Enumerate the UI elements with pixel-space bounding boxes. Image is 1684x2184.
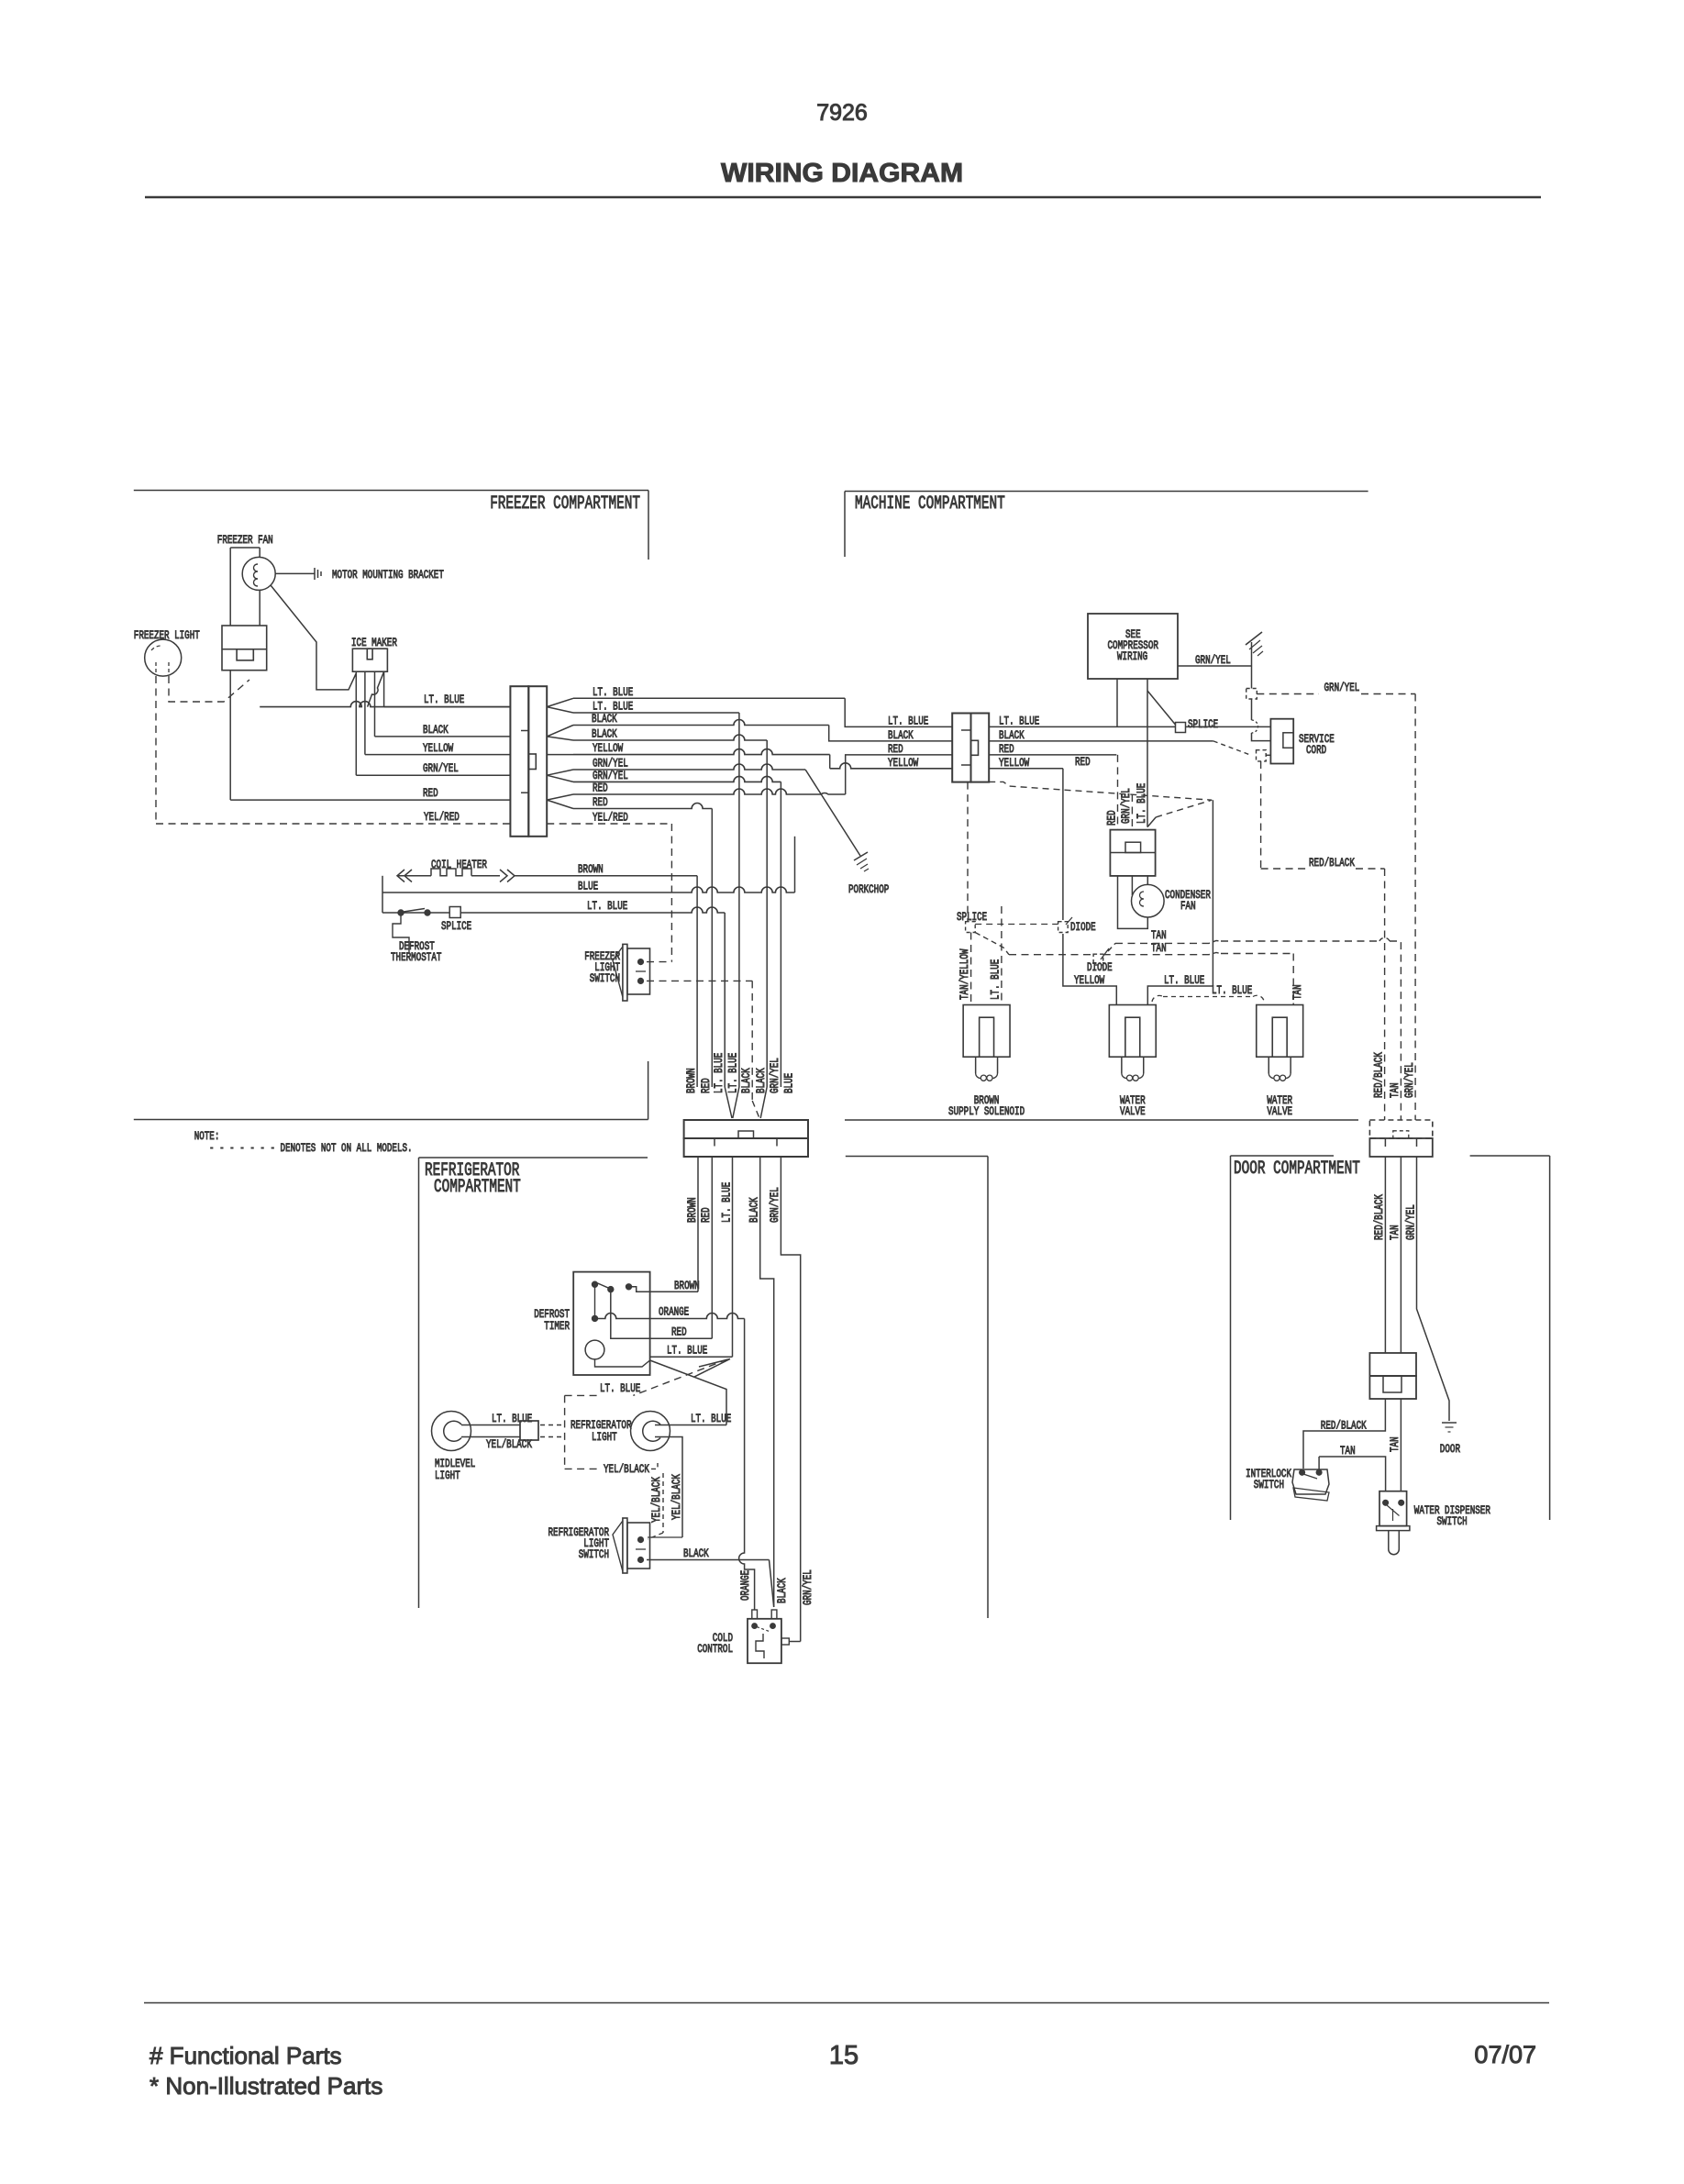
svg-text:YELLOW: YELLOW [423, 741, 453, 755]
svg-text:LT. BLUE: LT. BLUE [712, 1053, 726, 1093]
svg-text:LIGHT: LIGHT [592, 1430, 617, 1444]
svg-text:RED: RED [699, 1078, 713, 1093]
svg-text:RED: RED [593, 795, 608, 809]
svg-text:YEL/RED: YEL/RED [424, 810, 460, 824]
svg-text:YELLOW: YELLOW [593, 741, 623, 755]
svg-text:RED: RED [423, 786, 438, 800]
svg-text:FREEZER FAN: FREEZER FAN [217, 533, 273, 547]
svg-text:RED: RED [1075, 755, 1091, 769]
svg-text:SWITCH: SWITCH [579, 1547, 609, 1561]
svg-text:FAN: FAN [1180, 899, 1196, 913]
svg-text:RED: RED [699, 1207, 713, 1223]
svg-text:GRN/YEL: GRN/YEL [1402, 1062, 1416, 1098]
svg-text:BLACK: BLACK [739, 1068, 753, 1093]
svg-text:GRN/YEL: GRN/YEL [768, 1058, 781, 1093]
svg-text:PORKCHOP: PORKCHOP [848, 882, 889, 896]
svg-text:LT. BLUE: LT. BLUE [726, 1053, 740, 1093]
svg-text:LT. BLUE: LT. BLUE [1212, 983, 1252, 997]
svg-text:LT. BLUE: LT. BLUE [667, 1344, 707, 1358]
svg-text:RED/BLACK: RED/BLACK [1309, 856, 1355, 870]
svg-text:RED: RED [1104, 810, 1118, 826]
svg-text:YELLOW: YELLOW [1074, 973, 1104, 987]
svg-text:WIRING: WIRING [1117, 649, 1147, 663]
svg-text:BROWN: BROWN [685, 1197, 699, 1223]
svg-text:BLACK: BLACK [999, 728, 1025, 742]
svg-text:RED/BLACK: RED/BLACK [1372, 1194, 1386, 1240]
svg-text:TAN: TAN [1388, 1225, 1401, 1240]
svg-text:DOOR: DOOR [1440, 1442, 1460, 1456]
svg-text:GRN/YEL: GRN/YEL [1324, 681, 1360, 694]
svg-text:LT. BLUE: LT. BLUE [888, 714, 928, 727]
svg-text:- - - - - - - DENOTES NOT ON A: - - - - - - - DENOTES NOT ON ALL MODELS. [209, 1141, 413, 1155]
svg-text:LT. BLUE: LT. BLUE [691, 1412, 731, 1425]
svg-text:DOOR COMPARTMENT: DOOR COMPARTMENT [1234, 1159, 1360, 1180]
svg-text:TAN: TAN [1388, 1082, 1401, 1098]
svg-text:TAN: TAN [1291, 984, 1304, 1000]
svg-text:BROWN: BROWN [578, 862, 604, 876]
svg-text:GRN/YEL: GRN/YEL [1403, 1204, 1417, 1240]
svg-text:YEL/BLACK: YEL/BLACK [670, 1474, 683, 1520]
svg-text:YELLOW: YELLOW [999, 756, 1029, 770]
svg-text:TAN: TAN [1151, 928, 1167, 942]
svg-text:BLACK: BLACK [754, 1068, 768, 1093]
svg-text:SUPPLY SOLENOID: SUPPLY SOLENOID [948, 1104, 1025, 1118]
svg-text:ORANGE: ORANGE [659, 1305, 689, 1319]
svg-text:BLACK: BLACK [592, 712, 617, 726]
svg-text:LT. BLUE: LT. BLUE [999, 714, 1039, 727]
svg-text:THERMOSTAT: THERMOSTAT [391, 950, 442, 964]
svg-text:SWITCH: SWITCH [590, 971, 620, 985]
svg-text:TAN/YELLOW: TAN/YELLOW [958, 948, 971, 1000]
svg-text:SPLICE: SPLICE [441, 919, 471, 933]
svg-text:RED/BLACK: RED/BLACK [1321, 1419, 1367, 1433]
svg-text:LIGHT: LIGHT [435, 1469, 460, 1482]
svg-text:LT. BLUE: LT. BLUE [600, 1381, 640, 1395]
svg-text:BLUE: BLUE [578, 880, 598, 893]
svg-text:TAN: TAN [1388, 1436, 1401, 1452]
svg-text:DIODE: DIODE [1070, 920, 1096, 934]
svg-text:YEL/RED: YEL/RED [593, 811, 628, 825]
svg-text:CONTROL: CONTROL [697, 1642, 733, 1656]
svg-text:07/07: 07/07 [1474, 2041, 1536, 2068]
svg-text:YELLOW: YELLOW [888, 756, 918, 770]
svg-text:SPLICE: SPLICE [957, 910, 987, 924]
svg-text:VALVE: VALVE [1120, 1104, 1146, 1118]
svg-text:BLACK: BLACK [423, 723, 449, 737]
svg-text:BROWN: BROWN [684, 1068, 698, 1093]
svg-text:LT. BLUE: LT. BLUE [989, 959, 1003, 1000]
svg-text:RED: RED [888, 742, 903, 756]
svg-text:DIODE: DIODE [1087, 960, 1113, 974]
svg-text:* Non-Illustrated Parts: * Non-Illustrated Parts [150, 2072, 382, 2100]
svg-text:WIRING DIAGRAM: WIRING DIAGRAM [721, 159, 963, 188]
svg-text:BLUE: BLUE [781, 1073, 795, 1093]
svg-text:SWITCH: SWITCH [1437, 1514, 1468, 1528]
svg-text:BLACK: BLACK [775, 1578, 789, 1603]
svg-text:GRN/YEL: GRN/YEL [768, 1187, 781, 1223]
svg-text:TAN: TAN [1151, 941, 1167, 955]
svg-text:CORD: CORD [1306, 743, 1326, 757]
svg-text:LT. BLUE: LT. BLUE [492, 1412, 532, 1425]
svg-text:MOTOR MOUNTING BRACKET: MOTOR MOUNTING BRACKET [332, 568, 444, 582]
svg-text:15: 15 [829, 2041, 859, 2070]
svg-text:RED: RED [593, 782, 608, 795]
svg-text:BROWN: BROWN [674, 1279, 700, 1292]
svg-text:LT. BLUE: LT. BLUE [719, 1182, 733, 1223]
svg-text:GRN/YEL: GRN/YEL [1195, 653, 1231, 667]
svg-text:LT. BLUE: LT. BLUE [1164, 973, 1204, 987]
svg-text:RED: RED [671, 1325, 687, 1339]
svg-text:# Functional Parts: # Functional Parts [150, 2042, 342, 2069]
svg-text:LT. BLUE: LT. BLUE [587, 899, 627, 913]
svg-text:7926: 7926 [816, 100, 868, 126]
svg-text:LT. BLUE: LT. BLUE [1135, 783, 1148, 824]
svg-text:TIMER: TIMER [544, 1319, 570, 1333]
svg-text:BLACK: BLACK [888, 728, 914, 742]
svg-text:LT. BLUE: LT. BLUE [593, 685, 633, 699]
svg-text:YEL/BLACK: YEL/BLACK [604, 1462, 649, 1476]
svg-text:GRN/YEL: GRN/YEL [801, 1569, 814, 1605]
svg-text:GRN/YEL: GRN/YEL [423, 761, 459, 775]
svg-text:MACHINE COMPARTMENT: MACHINE COMPARTMENT [855, 493, 1005, 515]
svg-text:VALVE: VALVE [1267, 1104, 1292, 1118]
svg-text:SWITCH: SWITCH [1254, 1478, 1284, 1491]
svg-text:BLACK: BLACK [592, 727, 617, 741]
svg-text:LT. BLUE: LT. BLUE [424, 693, 464, 706]
svg-text:FREEZER COMPARTMENT: FREEZER COMPARTMENT [490, 493, 640, 515]
svg-text:RED/BLACK: RED/BLACK [1371, 1052, 1385, 1098]
svg-text:YEL/BLACK: YEL/BLACK [649, 1477, 663, 1523]
svg-text:BLACK: BLACK [748, 1197, 761, 1223]
svg-text:BLACK: BLACK [683, 1547, 709, 1560]
svg-text:ORANGE: ORANGE [738, 1570, 752, 1601]
svg-text:SPLICE: SPLICE [1188, 717, 1218, 731]
svg-text:COMPARTMENT: COMPARTMENT [434, 1177, 521, 1198]
svg-text:RED: RED [999, 742, 1014, 756]
svg-text:ICE MAKER: ICE MAKER [351, 636, 397, 649]
svg-text:TAN: TAN [1340, 1444, 1356, 1458]
